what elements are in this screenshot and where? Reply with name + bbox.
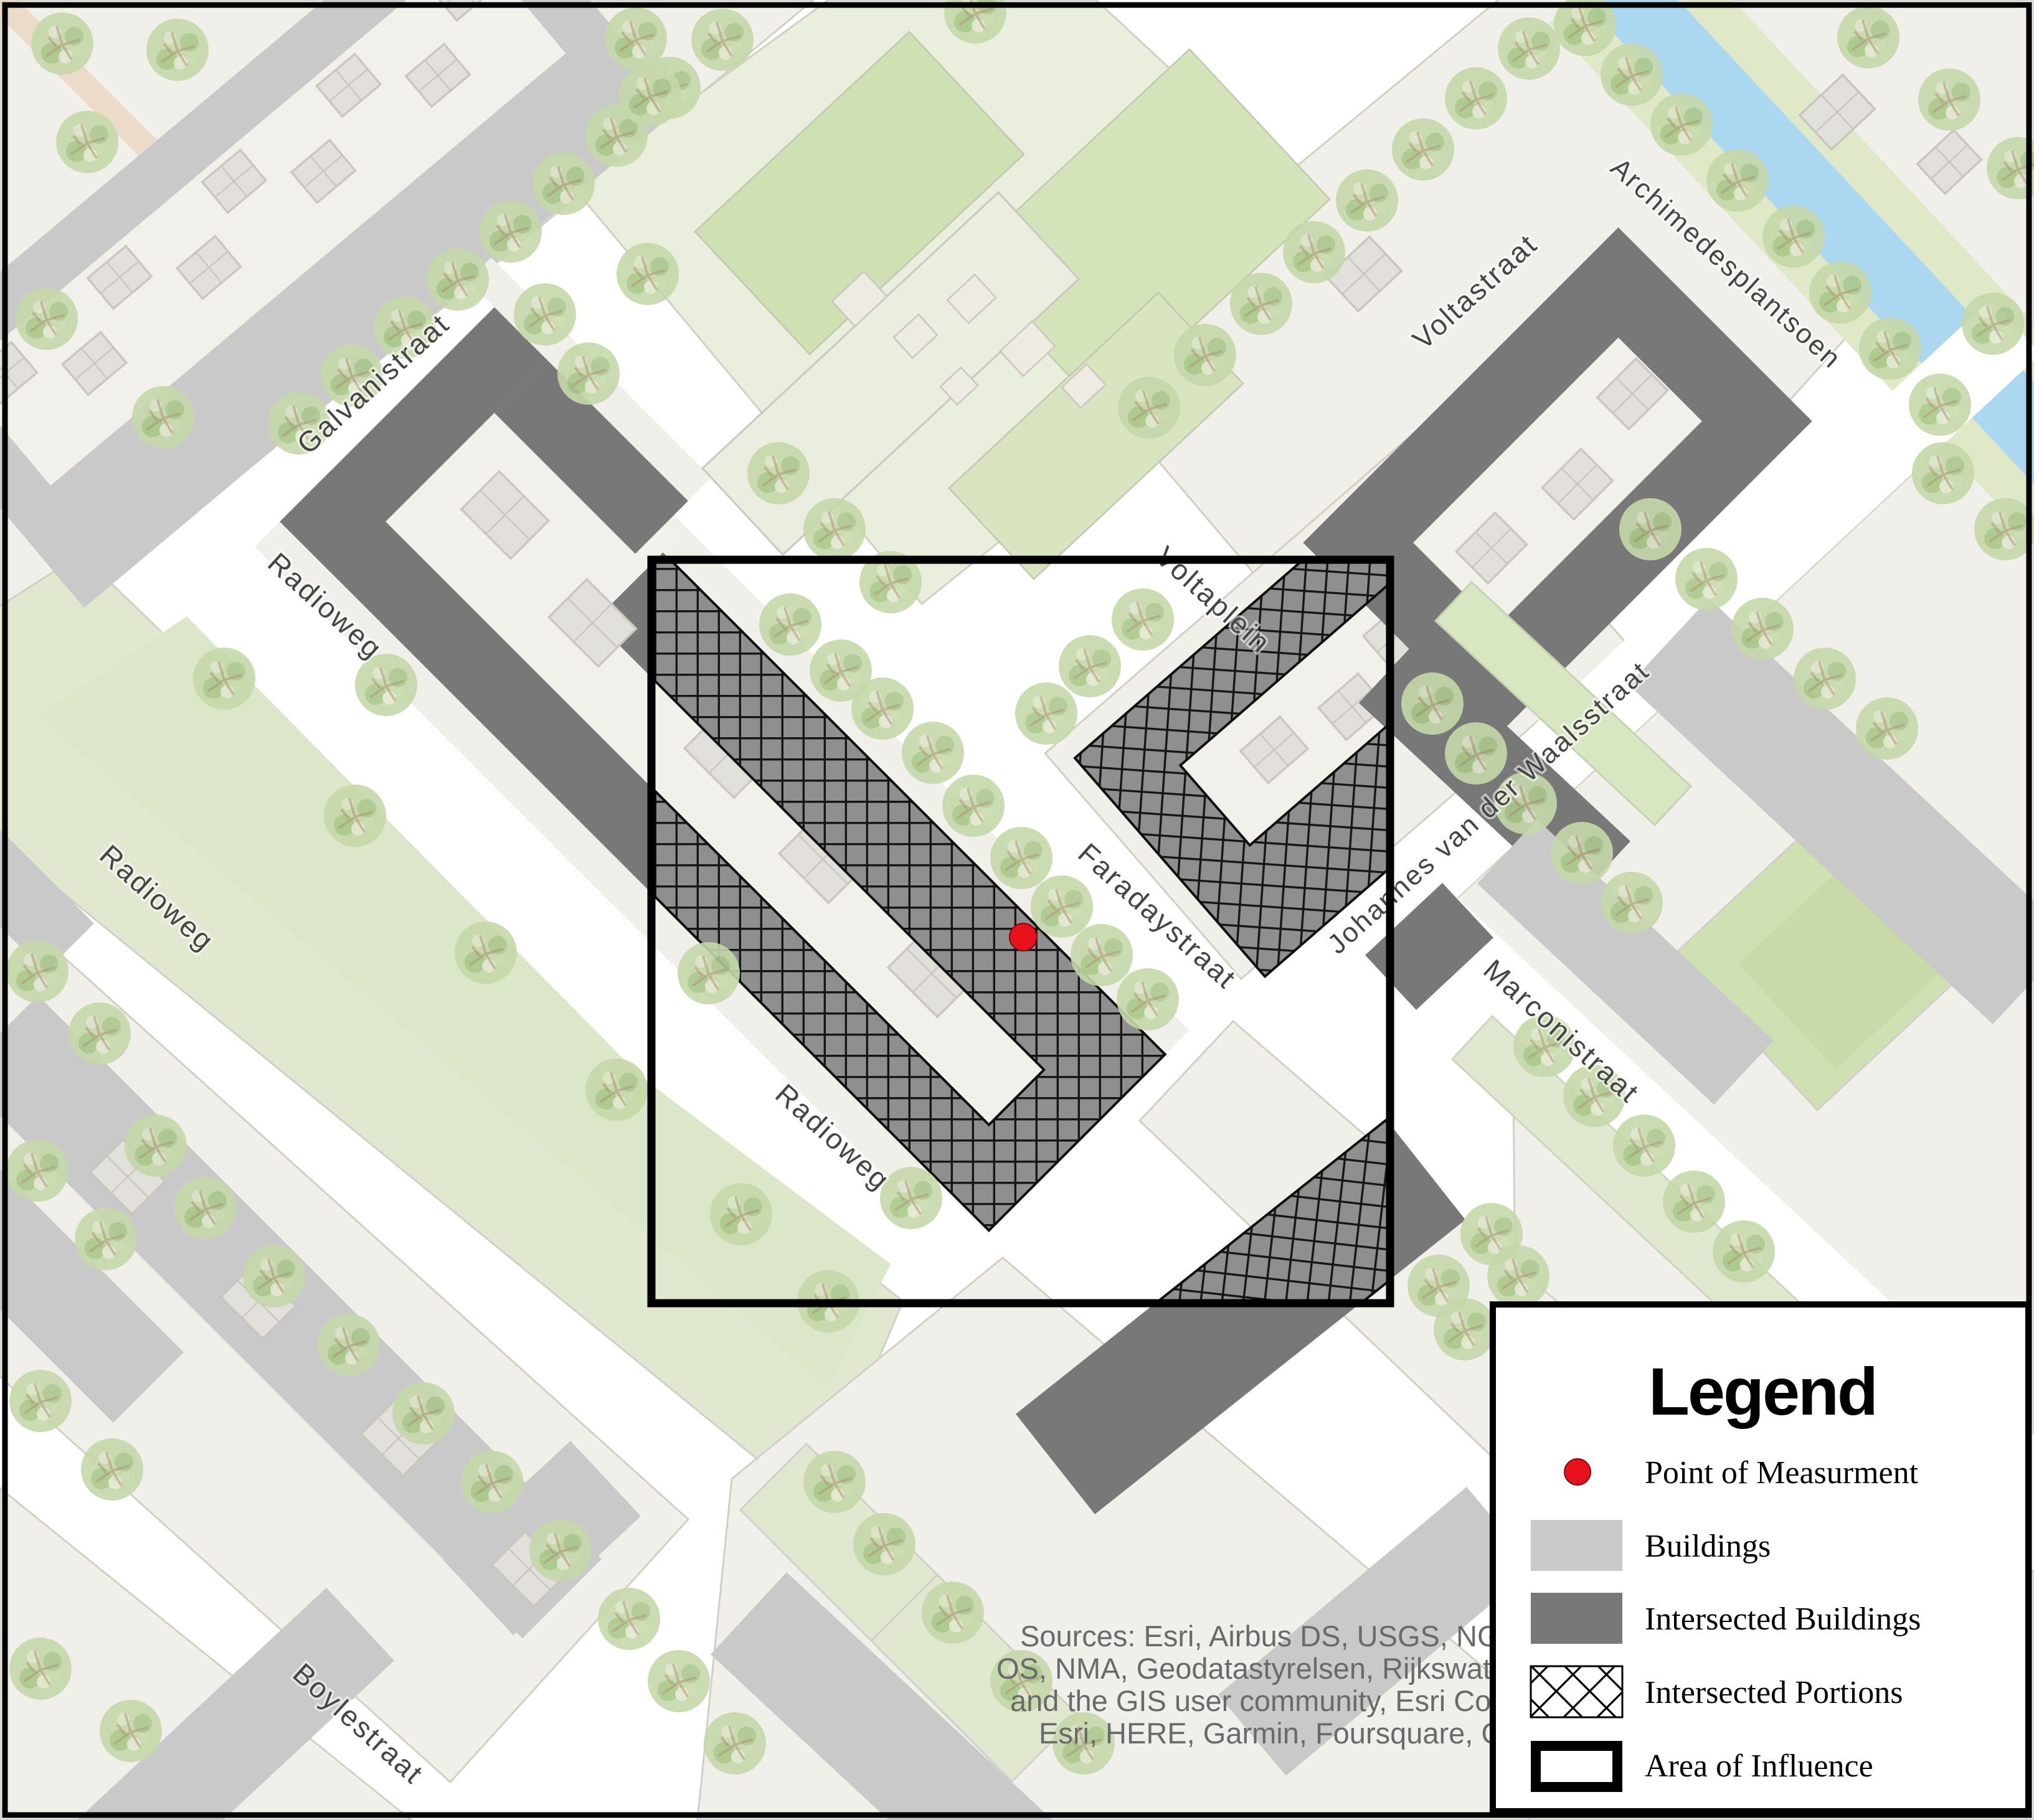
svg-text:Legend: Legend: [1648, 1354, 1876, 1429]
svg-text:Intersected Buildings: Intersected Buildings: [1645, 1601, 1921, 1637]
svg-text:Area of Influence: Area of Influence: [1645, 1748, 1873, 1784]
svg-text:Buildings: Buildings: [1645, 1529, 1771, 1564]
svg-text:Intersected Portions: Intersected Portions: [1645, 1675, 1903, 1710]
svg-text:Point of Measurment: Point of Measurment: [1645, 1455, 1919, 1491]
